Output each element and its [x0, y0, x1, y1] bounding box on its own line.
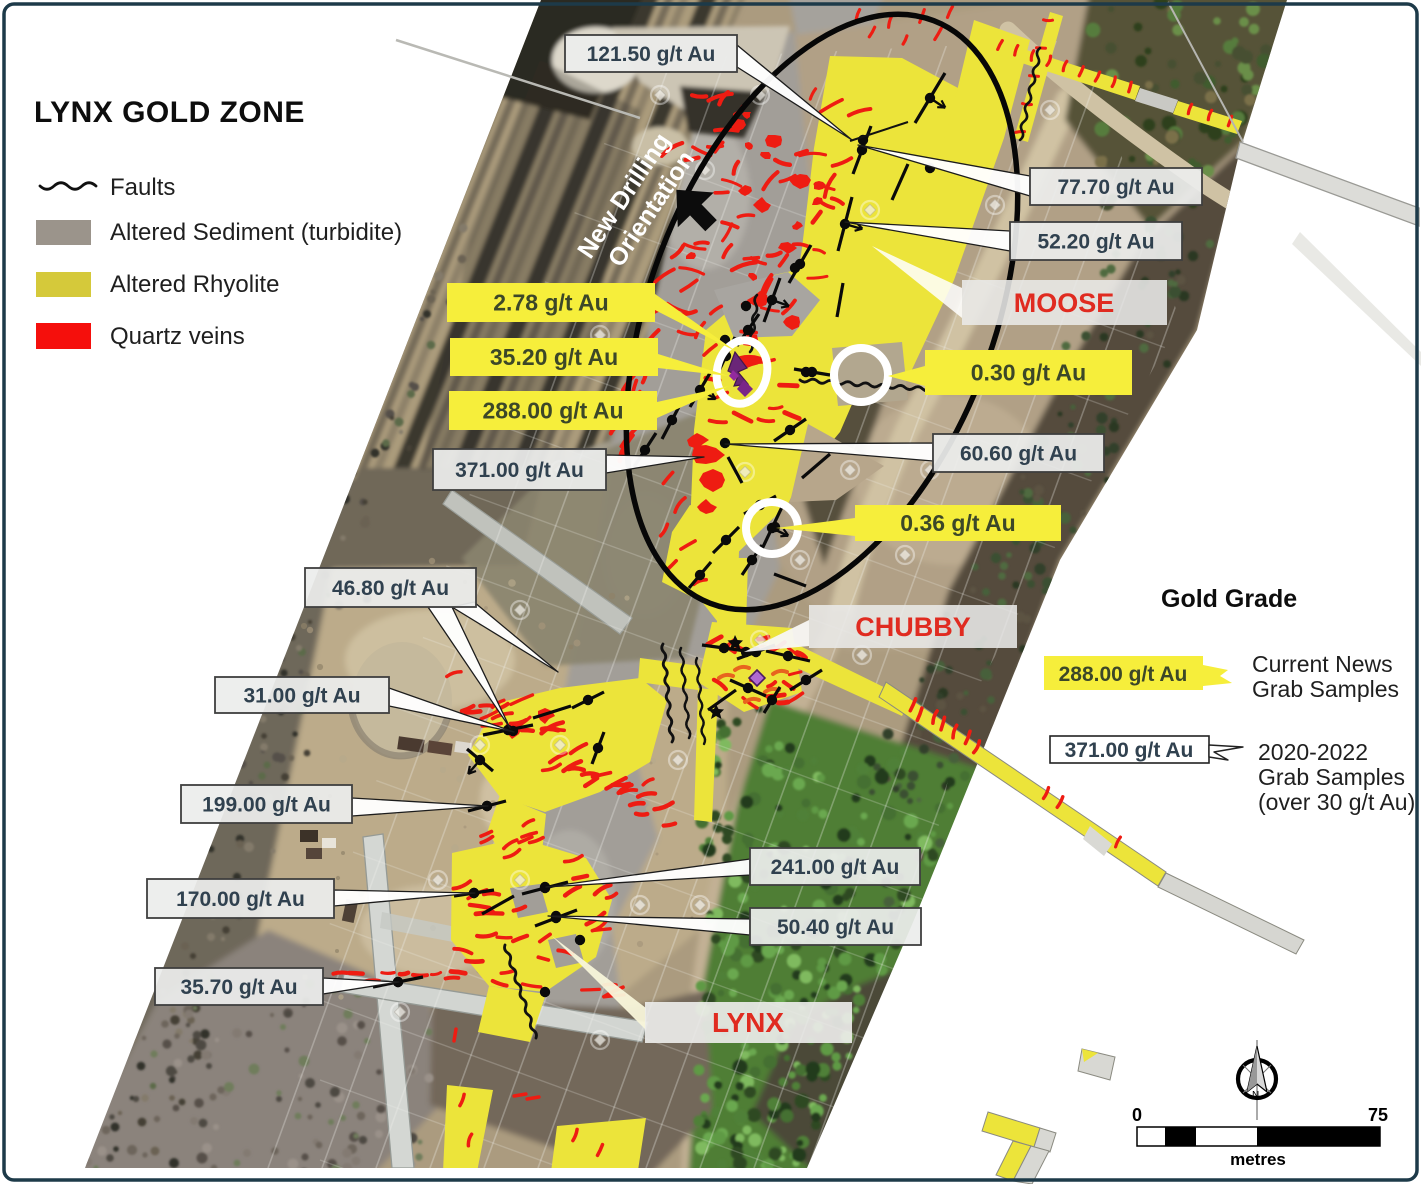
svg-text:0.36 g/t Au: 0.36 g/t Au [900, 510, 1015, 536]
svg-text:371.00 g/t Au: 371.00 g/t Au [455, 459, 584, 482]
svg-text:46.80 g/t Au: 46.80 g/t Au [332, 577, 449, 600]
svg-text:Altered Rhyolite: Altered Rhyolite [110, 271, 279, 298]
svg-text:35.20 g/t Au: 35.20 g/t Au [490, 344, 618, 370]
svg-text:2020-2022: 2020-2022 [1258, 739, 1368, 765]
svg-text:288.00 g/t Au: 288.00 g/t Au [1059, 663, 1188, 686]
svg-text:52.20 g/t Au: 52.20 g/t Au [1037, 230, 1154, 253]
svg-text:Gold Grade: Gold Grade [1161, 585, 1297, 613]
svg-text:288.00 g/t Au: 288.00 g/t Au [482, 398, 623, 424]
svg-text:Current News: Current News [1252, 651, 1393, 677]
svg-text:75: 75 [1368, 1105, 1388, 1125]
svg-text:121.50 g/t Au: 121.50 g/t Au [587, 43, 716, 66]
svg-text:Altered Sediment (turbidite): Altered Sediment (turbidite) [110, 219, 402, 246]
svg-text:Faults: Faults [110, 174, 175, 201]
svg-text:Grab Samples: Grab Samples [1252, 676, 1399, 702]
svg-text:77.70 g/t Au: 77.70 g/t Au [1057, 176, 1174, 199]
svg-text:0.30 g/t Au: 0.30 g/t Au [971, 360, 1086, 386]
svg-text:2.78 g/t Au: 2.78 g/t Au [493, 290, 608, 316]
svg-text:MOOSE: MOOSE [1014, 288, 1115, 318]
svg-text:metres: metres [1230, 1150, 1286, 1169]
svg-text:199.00 g/t Au: 199.00 g/t Au [202, 793, 331, 816]
svg-text:31.00 g/t Au: 31.00 g/t Au [243, 684, 360, 707]
svg-text:0: 0 [1132, 1105, 1142, 1125]
svg-text:35.70 g/t Au: 35.70 g/t Au [180, 976, 297, 999]
svg-text:N: N [1252, 1090, 1259, 1101]
svg-text:241.00 g/t Au: 241.00 g/t Au [771, 856, 900, 879]
svg-text:60.60 g/t Au: 60.60 g/t Au [960, 442, 1077, 465]
svg-text:CHUBBY: CHUBBY [855, 612, 971, 642]
svg-text:Quartz veins: Quartz veins [110, 323, 245, 350]
svg-text:371.00 g/t Au: 371.00 g/t Au [1065, 739, 1194, 762]
svg-text:170.00 g/t Au: 170.00 g/t Au [176, 888, 305, 911]
svg-text:50.40 g/t Au: 50.40 g/t Au [777, 916, 894, 939]
svg-text:(over 30 g/t Au): (over 30 g/t Au) [1258, 789, 1415, 815]
svg-text:LYNX GOLD ZONE: LYNX GOLD ZONE [34, 96, 305, 129]
svg-text:Grab Samples: Grab Samples [1258, 764, 1405, 790]
svg-text:LYNX: LYNX [712, 1007, 784, 1038]
